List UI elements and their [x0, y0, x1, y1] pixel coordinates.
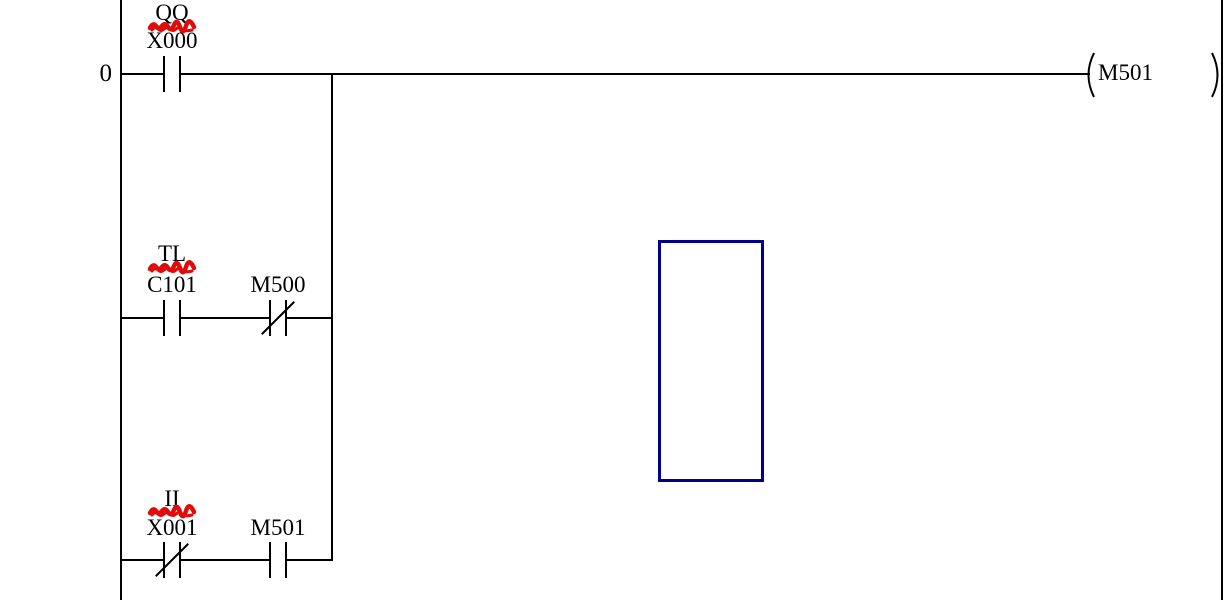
contact-leg [179, 56, 181, 92]
edit-cursor[interactable] [658, 240, 764, 482]
contact-leg [163, 300, 165, 336]
left-power-rail [120, 0, 122, 600]
contact-leg [163, 56, 165, 92]
contact-address: X001 [140, 516, 204, 540]
contact-address: M500 [246, 273, 310, 297]
contact-m501[interactable]: M501 [246, 515, 310, 580]
contact-x001[interactable]: II X001 [140, 485, 204, 580]
contact-leg [269, 542, 271, 578]
nc-slash [155, 543, 189, 577]
contact-leg [269, 300, 271, 336]
ladder-editor-canvas: 0 QQ X000 TL C101 M500 [0, 0, 1226, 600]
contact-c101[interactable]: TL C101 [140, 242, 204, 337]
contact-leg [285, 542, 287, 578]
contact-leg [179, 542, 181, 578]
contact-leg [163, 542, 165, 578]
coil-address: M501 [1098, 61, 1153, 85]
contact-address: M501 [246, 516, 310, 540]
rung0-wire-right [181, 73, 1090, 75]
contact-leg [179, 300, 181, 336]
contact-address: X000 [140, 29, 204, 53]
contact-x000[interactable]: QQ X000 [140, 0, 204, 93]
coil-m501[interactable]: M501 [1082, 52, 1224, 98]
contact-m500[interactable]: M500 [246, 272, 310, 337]
contact-leg [285, 300, 287, 336]
rung-number: 0 [84, 61, 112, 87]
nc-slash [261, 301, 295, 335]
contact-address: C101 [140, 273, 204, 297]
